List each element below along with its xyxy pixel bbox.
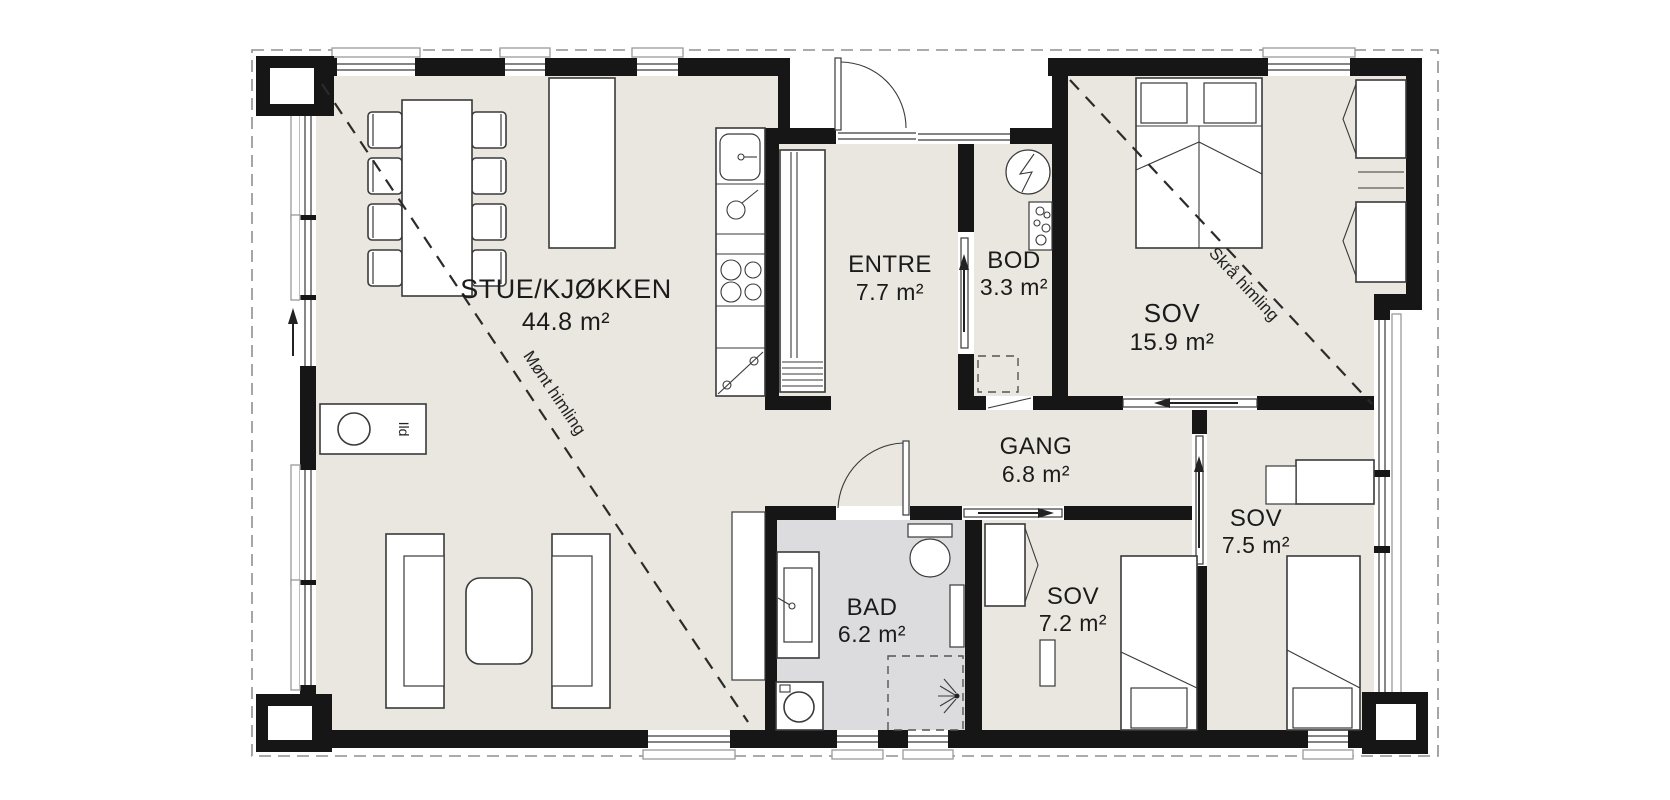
room-area: 7.5 m² — [1222, 532, 1290, 558]
single-bed-sov-72 — [1121, 556, 1197, 730]
floorplan-page: Ild — [0, 0, 1670, 800]
vanity-sink — [777, 552, 819, 658]
door-swing-arc — [841, 62, 906, 128]
door-leaf — [835, 58, 841, 130]
door-leaf — [903, 441, 909, 515]
kitchen-island — [549, 78, 615, 248]
washing-machine-icon — [776, 682, 823, 730]
door-direction-arrow — [288, 308, 298, 356]
sink-icon — [720, 134, 760, 180]
entry-door — [835, 58, 918, 144]
room-label-sov-75: SOV 7.5 m² — [1222, 505, 1290, 558]
sliding-door-sov-15 — [1123, 396, 1257, 410]
electrical-panel-icon — [1006, 150, 1050, 194]
floorplan-drawing: Ild — [0, 0, 1670, 800]
fireplace: Ild — [320, 404, 426, 454]
room-name: STUE/KJØKKEN — [460, 274, 672, 304]
room-area: 7.2 m² — [1039, 610, 1107, 636]
terrace-door — [300, 300, 316, 366]
window-right — [1374, 314, 1401, 698]
single-bed-sov-75 — [1287, 556, 1360, 730]
room-area: 6.2 m² — [838, 621, 906, 647]
bathroom-cabinet — [950, 585, 964, 647]
double-bed — [1136, 78, 1262, 248]
room-area: 44.8 m² — [522, 308, 610, 336]
dining-table — [402, 100, 472, 296]
room-area: 7.7 m² — [856, 279, 924, 305]
sliding-door-sov-72 — [962, 506, 1064, 520]
sofa-left — [386, 534, 444, 708]
room-area: 6.8 m² — [1002, 461, 1070, 487]
room-area: 15.9 m² — [1130, 329, 1215, 356]
room-label-bad: BAD 6.2 m² — [838, 594, 906, 647]
entre-wardrobe — [780, 150, 825, 392]
fireplace-label: Ild — [396, 422, 412, 437]
bod-door-opening — [986, 396, 1033, 410]
water-heater-icon — [1029, 202, 1052, 250]
room-name: BAD — [847, 594, 898, 621]
kitchen-counter — [716, 128, 765, 396]
pillow — [1141, 83, 1187, 123]
room-name: GANG — [1000, 433, 1073, 460]
sofa-right — [552, 534, 610, 708]
room-name: SOV — [1230, 505, 1282, 532]
pillow — [1204, 83, 1256, 123]
room-name: SOV — [1047, 583, 1099, 610]
pillow — [1131, 688, 1187, 728]
desk-sov-75 — [1266, 460, 1374, 504]
nightstand — [1040, 640, 1055, 686]
pillow — [1293, 688, 1352, 728]
room-name: BOD — [987, 247, 1041, 274]
room-name: ENTRE — [848, 251, 932, 278]
room-label-sov-72: SOV 7.2 m² — [1039, 583, 1107, 636]
desk-chair — [1266, 466, 1296, 504]
pocket-door-entre-bod — [958, 232, 974, 354]
room-label-bod: BOD 3.3 m² — [980, 247, 1048, 300]
room-name: SOV — [1144, 298, 1201, 328]
toilet — [908, 524, 952, 577]
tv-bench — [732, 512, 765, 680]
coffee-table — [466, 578, 532, 664]
sliding-door-sov-75 — [1192, 434, 1207, 566]
room-area: 3.3 m² — [980, 274, 1048, 300]
entry-sidelight-window — [918, 128, 1010, 144]
